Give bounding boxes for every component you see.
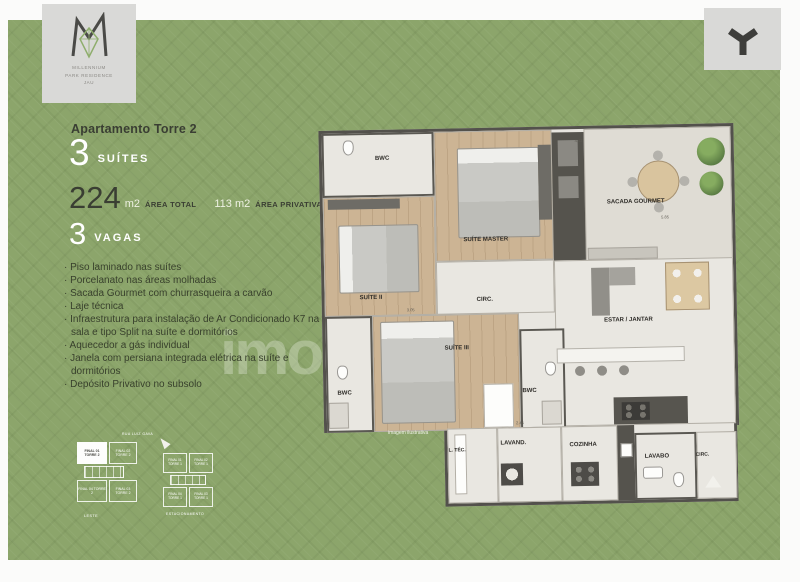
- label-suite2: SUÍTE II: [360, 295, 383, 301]
- washing-machine: [501, 463, 523, 485]
- oven: [558, 176, 578, 198]
- keyplan-torre2: FINAL 01 TORRE 2 FINAL 02 TORRE 2 FINAL …: [66, 436, 138, 506]
- bed-suite2: [338, 224, 419, 294]
- keyplan-unit: FINAL 02 TORRE 1: [189, 453, 213, 473]
- label-estar: ESTAR / JANTAR: [604, 317, 653, 324]
- brand-name-line2: PARK RESIDENCE: [65, 72, 113, 80]
- wardrobe-master: [538, 145, 552, 220]
- wardrobe-suite2: [328, 198, 400, 209]
- lavabo-toilet: [673, 472, 684, 487]
- room-lavabo: [634, 432, 697, 500]
- feature-item: · Laje técnica: [64, 300, 322, 313]
- kitchen-island: [557, 346, 685, 363]
- area-spec: 224 m2 ÁREA TOTAL 113 m2 ÁREA PRIVATIVA: [69, 184, 322, 212]
- keyplan-core: [170, 475, 206, 485]
- label-circ-entry: CIRC.: [696, 453, 710, 458]
- brand-name-line1: MILLENNIUM: [65, 64, 113, 72]
- dim-suite2: 3.05: [407, 307, 415, 312]
- feature-list: · Piso laminado nas suítes · Porcelanato…: [64, 261, 322, 391]
- page-title: Apartamento Torre 2: [71, 122, 197, 136]
- area-total-label: ÁREA TOTAL: [140, 200, 196, 212]
- area-private-value: 113 m2: [210, 198, 250, 212]
- brand-card: MILLENNIUM PARK RESIDENCE JAU: [42, 4, 136, 103]
- dim-estar: 5.85: [661, 214, 669, 219]
- feature-item: · Janela com persiana integrada elétrica…: [64, 352, 322, 378]
- entry-arrow-icon: [705, 475, 721, 487]
- keyplan-unit: FINAL 01 TORRE 1: [163, 453, 187, 473]
- suites-spec: 3 SUÍTES: [69, 136, 149, 169]
- vagas-count: 3: [69, 220, 86, 248]
- keyplan-unit-highlight: FINAL 01 TORRE 2: [77, 442, 107, 464]
- feature-item: · Piso laminado nas suítes: [64, 261, 322, 274]
- bwc-top-toilet: [343, 140, 354, 155]
- vagas-label: VAGAS: [86, 232, 142, 248]
- sofa: [591, 267, 610, 315]
- cozinha-sink: [620, 443, 632, 457]
- label-suite3: SUÍTE III: [445, 345, 469, 351]
- label-suite-master: SUÍTE MASTER: [463, 236, 508, 243]
- area-total-value: 224: [69, 184, 121, 212]
- plan-caption: imagem ilustrativa: [388, 430, 428, 436]
- room-circ-entry: [696, 431, 737, 499]
- label-lavand: LAVAND.: [500, 440, 526, 446]
- closet-suite3: [483, 383, 514, 428]
- millennium-logo-icon: [67, 12, 111, 62]
- suites-count: 3: [69, 136, 90, 169]
- bwc-right-shower: [542, 400, 562, 424]
- keyplan-unit: FINAL 03 TORRE 1: [189, 487, 213, 507]
- developer-card: [704, 8, 781, 70]
- bwc-left-toilet: [337, 366, 348, 380]
- developer-logo-icon: [723, 19, 763, 59]
- fridge: [558, 140, 578, 166]
- ltec-panel: [454, 434, 467, 494]
- keyplan-unit: FINAL 03 TORRE 2: [109, 480, 137, 502]
- label-cozinha: COZINHA: [569, 442, 596, 449]
- cooktop: [622, 402, 650, 421]
- feature-item: · Sacada Gourmet com churrasqueira a car…: [64, 287, 322, 300]
- keyplan-unit: FINAL 02 TORRE 2: [109, 442, 137, 464]
- keyplan-unit: FINAL 04 TORRE 1: [163, 487, 187, 507]
- dim-sacada: 4.42: [575, 138, 583, 143]
- dim-strip: 2.45: [516, 420, 524, 425]
- feature-item: · Infraestrutura para instalação de Ar C…: [64, 313, 322, 339]
- room-circulation: [436, 260, 555, 315]
- area-private-label: ÁREA PRIVATIVA: [250, 200, 322, 212]
- area-total-unit: m2: [121, 198, 140, 212]
- stove: [571, 462, 599, 487]
- feature-item: · Porcelanato nas áreas molhadas: [64, 274, 322, 287]
- label-sacada: SACADA GOURMET: [607, 198, 665, 205]
- label-ltec: L. TÉC.: [449, 448, 466, 453]
- brochure-page: MILLENNIUM PARK RESIDENCE JAU Apartament…: [0, 0, 800, 582]
- lavabo-sink: [643, 466, 663, 478]
- keyplan-unit: FINAL 04 TORRE 2: [77, 480, 107, 502]
- brand-name: MILLENNIUM PARK RESIDENCE JAU: [65, 64, 113, 87]
- vagas-spec: 3 VAGAS: [69, 220, 143, 248]
- churrasqueira-counter: [588, 247, 658, 260]
- brand-name-line3: JAU: [65, 79, 113, 87]
- bwc-left-shower: [329, 402, 349, 428]
- label-bwc-top: BWC: [375, 156, 389, 162]
- keyplan-left-bottom-label: LESTE: [84, 514, 98, 518]
- bwc-right-toilet: [545, 362, 556, 376]
- bed-suite-master: [457, 147, 541, 239]
- bed-suite3: [380, 320, 456, 423]
- room-bwc-top: [321, 132, 434, 198]
- keyplan-core: [84, 466, 124, 478]
- floorplan: BWC SUÍTE MASTER SACADA GOURMET SUÍTE II…: [318, 123, 741, 511]
- cozinha-wall: [617, 425, 635, 500]
- label-lavabo: LAVABO: [645, 453, 670, 459]
- feature-item: · Aquecedor a gás individual: [64, 339, 322, 352]
- dining-table: [665, 262, 710, 311]
- sofa-chaise: [609, 267, 635, 285]
- label-circ-mid: CIRC.: [477, 297, 493, 303]
- suites-label: SUÍTES: [90, 153, 150, 169]
- label-bwc-right: BWC: [522, 388, 536, 394]
- keyplan-torre1: FINAL 01 TORRE 1 FINAL 02 TORRE 1 FINAL …: [160, 450, 216, 510]
- label-bwc-left: BWC: [337, 390, 351, 396]
- keyplan-right-bottom-label: ESTACIONAMENTO: [166, 512, 204, 516]
- feature-item: · Depósito Privativo no subsolo: [64, 378, 322, 391]
